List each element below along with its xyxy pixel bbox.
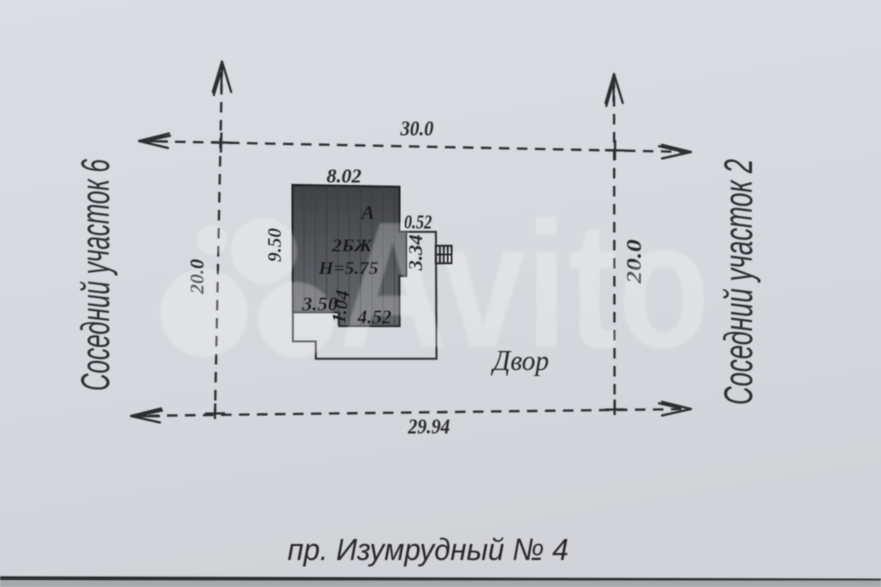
svg-text:Соседний участок 6: Соседний участок 6: [74, 159, 118, 391]
svg-text:2БЖ: 2БЖ: [331, 236, 373, 256]
svg-text:9.50: 9.50: [264, 228, 286, 262]
svg-text:Двор: Двор: [490, 346, 549, 377]
svg-text:3.34: 3.34: [405, 235, 427, 272]
svg-text:Соседний участок 2: Соседний участок 2: [717, 159, 761, 405]
svg-text:29.94: 29.94: [407, 415, 450, 439]
svg-text:пр. Изумрудный № 4: пр. Изумрудный № 4: [288, 532, 569, 567]
svg-text:1.04: 1.04: [328, 289, 354, 325]
svg-text:8.02: 8.02: [327, 166, 362, 188]
svg-text:4.52: 4.52: [357, 307, 392, 329]
svg-text:А: А: [359, 202, 374, 224]
svg-text:30.0: 30.0: [400, 117, 434, 141]
svg-text:0.52: 0.52: [404, 212, 432, 234]
svg-text:Н=5.75: Н=5.75: [317, 258, 378, 278]
